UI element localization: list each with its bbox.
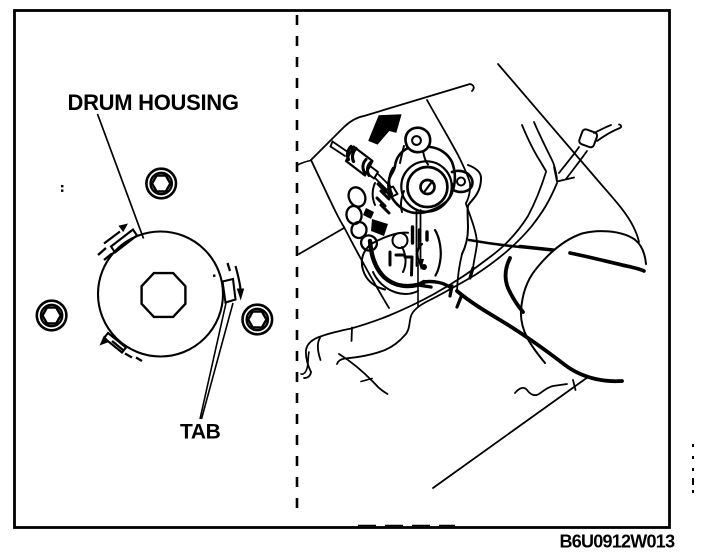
svg-text:B6U0912W013: B6U0912W013 xyxy=(560,531,676,551)
svg-text:DRUM HOUSING: DRUM HOUSING xyxy=(68,90,239,115)
svg-text:TAB: TAB xyxy=(180,420,221,443)
